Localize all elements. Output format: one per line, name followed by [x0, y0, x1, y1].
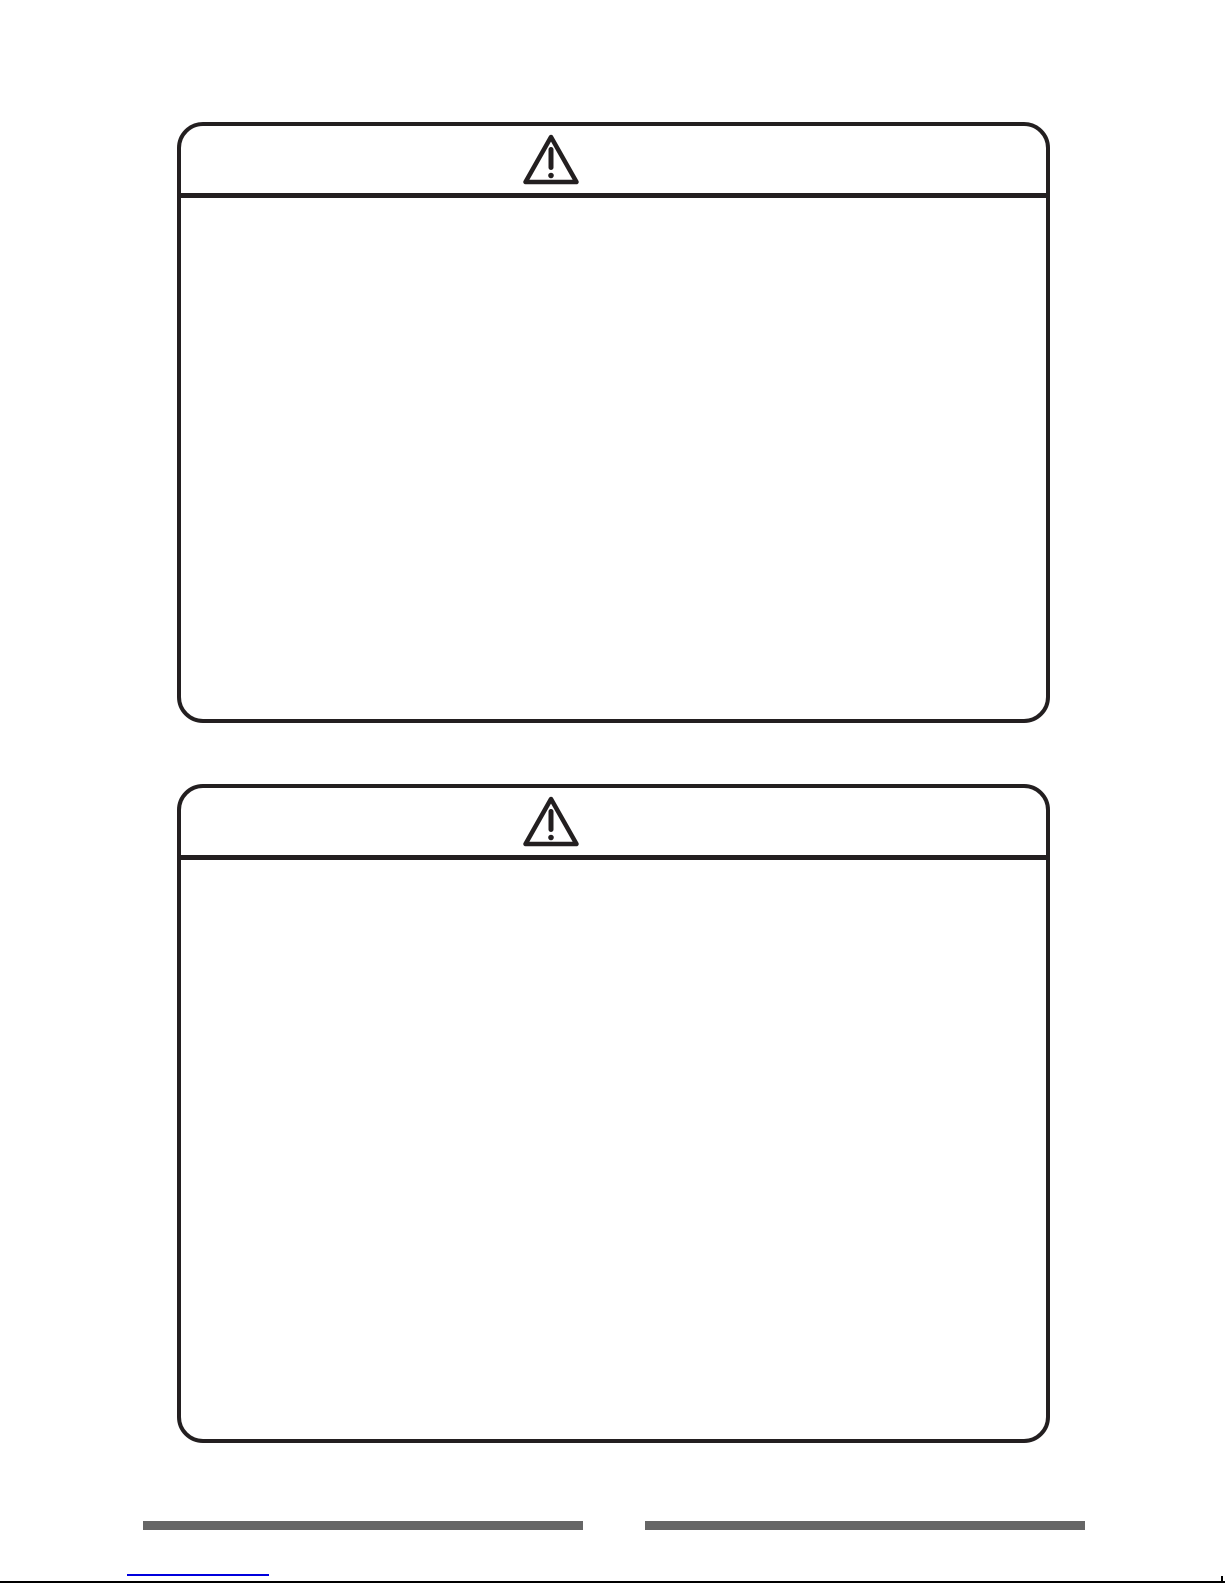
page-edge-rule [0, 1581, 1225, 1583]
warning-triangle-icon [522, 133, 580, 186]
warning-box-bottom-header [181, 788, 1046, 860]
footer-bar-left [143, 1521, 583, 1530]
warning-box-top-header [181, 126, 1046, 198]
link-underline[interactable] [127, 1574, 269, 1576]
footer-bar-right [645, 1521, 1085, 1530]
warning-triangle-icon [522, 795, 580, 848]
warning-box-bottom [177, 784, 1050, 1443]
warning-box-top [177, 122, 1050, 723]
page-edge-tick [1221, 1576, 1223, 1583]
